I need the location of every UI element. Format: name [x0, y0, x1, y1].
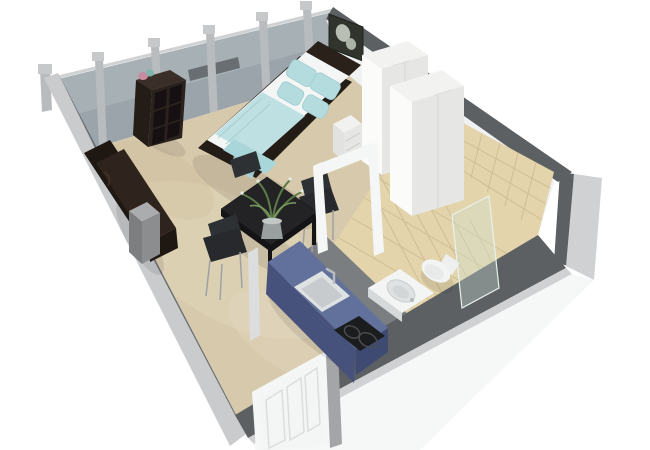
deco-teal-object: [146, 70, 154, 77]
floorplan-3d-render: [0, 0, 650, 450]
kitchen-wall-jamb: [248, 247, 260, 341]
plant-pot-rim: [262, 218, 282, 224]
apartment-isometric-scene: [0, 0, 650, 450]
side-pedestal: [129, 202, 160, 264]
washbasin-faucet: [410, 298, 414, 302]
cube-shelf-unit: [133, 70, 186, 148]
wardrobe-front-left: [390, 86, 412, 216]
